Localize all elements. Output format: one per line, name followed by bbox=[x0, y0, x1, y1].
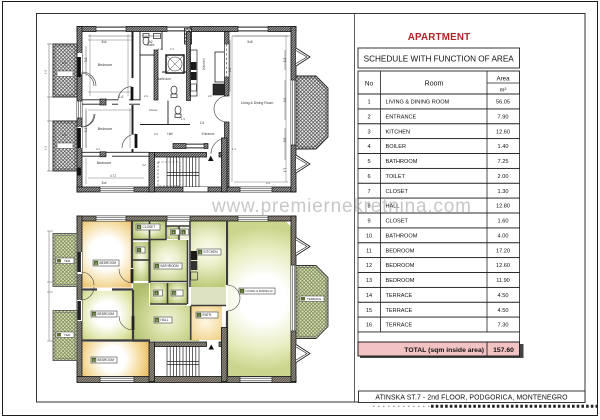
svg-text:12.60: 12.60 bbox=[496, 263, 510, 269]
svg-text:12.80: 12.80 bbox=[496, 204, 510, 210]
svg-text:BEDROOM: BEDROOM bbox=[386, 263, 415, 269]
svg-text:LIVING & DINING ROOM: LIVING & DINING ROOM bbox=[386, 100, 450, 106]
svg-text:10: 10 bbox=[172, 291, 176, 295]
svg-text:11.90: 11.90 bbox=[496, 278, 510, 284]
svg-text:2.00: 2.00 bbox=[498, 174, 509, 180]
svg-text:2.4: 2.4 bbox=[266, 181, 270, 185]
svg-text:1.1: 1.1 bbox=[232, 147, 236, 151]
svg-text:1.40: 1.40 bbox=[498, 144, 509, 150]
svg-text:12: 12 bbox=[92, 312, 96, 316]
svg-text:5x8: 5x8 bbox=[247, 40, 252, 44]
svg-text:www.premiernekretnina.com: www.premiernekretnina.com bbox=[211, 196, 472, 217]
svg-text:Bedroom: Bedroom bbox=[98, 63, 113, 67]
svg-text:9: 9 bbox=[367, 219, 370, 225]
svg-text:BOILER: BOILER bbox=[386, 144, 407, 150]
svg-text:1: 1 bbox=[367, 100, 370, 106]
svg-text:CLOSET: CLOSET bbox=[386, 189, 409, 195]
svg-text:7: 7 bbox=[367, 189, 370, 195]
svg-text:No: No bbox=[365, 81, 374, 88]
svg-text:4.50: 4.50 bbox=[498, 308, 509, 314]
svg-text:CLOSET: CLOSET bbox=[386, 219, 409, 225]
svg-text:56.05: 56.05 bbox=[496, 100, 510, 106]
svg-text:7.25: 7.25 bbox=[498, 159, 509, 165]
svg-text:4.00: 4.00 bbox=[498, 233, 509, 239]
svg-text:CLOSET: CLOSET bbox=[143, 225, 156, 229]
svg-text:TOILET: TOILET bbox=[386, 174, 406, 180]
svg-text:m²: m² bbox=[500, 88, 507, 94]
svg-text:4.50: 4.50 bbox=[498, 293, 509, 299]
svg-text:10: 10 bbox=[366, 233, 372, 239]
svg-text:ATINSKA ST.7 - 2nd FLOOR, PODG: ATINSKA ST.7 - 2nd FLOOR, PODGORICA, MON… bbox=[375, 395, 568, 402]
svg-text:BEDROOM: BEDROOM bbox=[386, 278, 415, 284]
svg-text:Entrance: Entrance bbox=[202, 132, 215, 136]
svg-text:KITCHEN: KITCHEN bbox=[204, 250, 219, 254]
svg-text:12.60: 12.60 bbox=[496, 129, 510, 135]
svg-text:TERRACE: TERRACE bbox=[386, 323, 413, 329]
svg-text:1.6: 1.6 bbox=[119, 95, 124, 99]
svg-text:3.1: 3.1 bbox=[96, 147, 100, 151]
svg-text:Area: Area bbox=[496, 76, 510, 83]
svg-text:BATHROOM: BATHROOM bbox=[386, 233, 418, 239]
svg-text:Living & Dining Room: Living & Dining Room bbox=[241, 101, 274, 105]
svg-text:2.1: 2.1 bbox=[170, 47, 174, 51]
svg-text:TER.: TER. bbox=[64, 259, 71, 263]
svg-text:12: 12 bbox=[366, 263, 372, 269]
svg-text:1.2: 1.2 bbox=[158, 47, 162, 51]
svg-text:4.72: 4.72 bbox=[110, 174, 116, 178]
svg-text:Closet: Closet bbox=[149, 108, 158, 112]
svg-text:11: 11 bbox=[366, 248, 372, 254]
svg-text:1.5: 1.5 bbox=[62, 61, 67, 65]
svg-text:6: 6 bbox=[367, 174, 370, 180]
svg-text:HALL: HALL bbox=[161, 318, 169, 322]
svg-text:3x4: 3x4 bbox=[101, 40, 106, 44]
svg-text:2x2: 2x2 bbox=[147, 40, 152, 44]
svg-text:2: 2 bbox=[367, 114, 370, 120]
svg-text:7.30: 7.30 bbox=[498, 323, 509, 329]
svg-text:ENTRANCE: ENTRANCE bbox=[386, 114, 417, 120]
svg-text:1.30: 1.30 bbox=[498, 189, 509, 195]
svg-text:APARTMENT: APARTMENT bbox=[408, 32, 471, 43]
svg-text:7.90: 7.90 bbox=[498, 114, 509, 120]
svg-text:2.6: 2.6 bbox=[154, 132, 158, 136]
svg-text:Bedroom: Bedroom bbox=[98, 127, 113, 131]
svg-text:Room: Room bbox=[425, 81, 444, 88]
svg-text:2.0: 2.0 bbox=[208, 94, 212, 98]
svg-text:ENTR.: ENTR. bbox=[203, 313, 213, 317]
svg-text:16: 16 bbox=[366, 323, 372, 329]
svg-text:SCHEDULE WITH FUNCTION OF AREA: SCHEDULE WITH FUNCTION OF AREA bbox=[364, 55, 515, 64]
svg-text:1.60: 1.60 bbox=[498, 219, 509, 225]
svg-text:LIVING & DINING R.: LIVING & DINING R. bbox=[246, 289, 274, 293]
svg-text:1.9: 1.9 bbox=[181, 117, 185, 121]
svg-text:BEDROOM: BEDROOM bbox=[386, 248, 415, 254]
svg-text:13: 13 bbox=[366, 278, 372, 284]
svg-text:Hall: Hall bbox=[167, 132, 173, 136]
svg-text:1.5: 1.5 bbox=[62, 133, 67, 137]
svg-text:5: 5 bbox=[367, 159, 370, 165]
svg-text:4: 4 bbox=[367, 144, 370, 150]
svg-text:17.20: 17.20 bbox=[496, 248, 510, 254]
svg-text:Bathroom: Bathroom bbox=[157, 77, 171, 81]
svg-text:3: 3 bbox=[367, 129, 370, 135]
svg-text:11: 11 bbox=[94, 261, 97, 265]
svg-text:4.2: 4.2 bbox=[142, 163, 146, 167]
svg-text:Kitchen: Kitchen bbox=[202, 58, 206, 69]
svg-text:TERRACE: TERRACE bbox=[307, 297, 321, 301]
svg-text:BEDROOM: BEDROOM bbox=[98, 312, 115, 316]
svg-text:BEDROOM: BEDROOM bbox=[100, 261, 117, 265]
svg-text:1.5: 1.5 bbox=[283, 168, 287, 173]
svg-text:2.6: 2.6 bbox=[200, 121, 205, 125]
svg-text:TOTAL (sqm inside area): TOTAL (sqm inside area) bbox=[404, 347, 484, 354]
svg-text:14: 14 bbox=[366, 293, 372, 299]
svg-text:1.6: 1.6 bbox=[44, 70, 48, 75]
svg-text:TER.: TER. bbox=[64, 333, 71, 337]
svg-text:157.60: 157.60 bbox=[493, 347, 514, 354]
svg-text:Bedroom: Bedroom bbox=[97, 161, 112, 165]
svg-text:KITCHEN: KITCHEN bbox=[386, 129, 411, 135]
svg-text:2.2: 2.2 bbox=[144, 94, 148, 98]
svg-text:BEDROOM: BEDROOM bbox=[98, 358, 115, 362]
svg-text:1.5: 1.5 bbox=[44, 146, 48, 151]
svg-text:BATHROOM: BATHROOM bbox=[386, 159, 418, 165]
svg-text:3x4: 3x4 bbox=[101, 181, 106, 185]
svg-text:BATHROOM: BATHROOM bbox=[161, 264, 180, 268]
svg-text:13: 13 bbox=[92, 358, 96, 362]
svg-text:TERRACE: TERRACE bbox=[386, 293, 413, 299]
svg-text:TERRACE: TERRACE bbox=[386, 308, 413, 314]
svg-text:15: 15 bbox=[366, 308, 372, 314]
